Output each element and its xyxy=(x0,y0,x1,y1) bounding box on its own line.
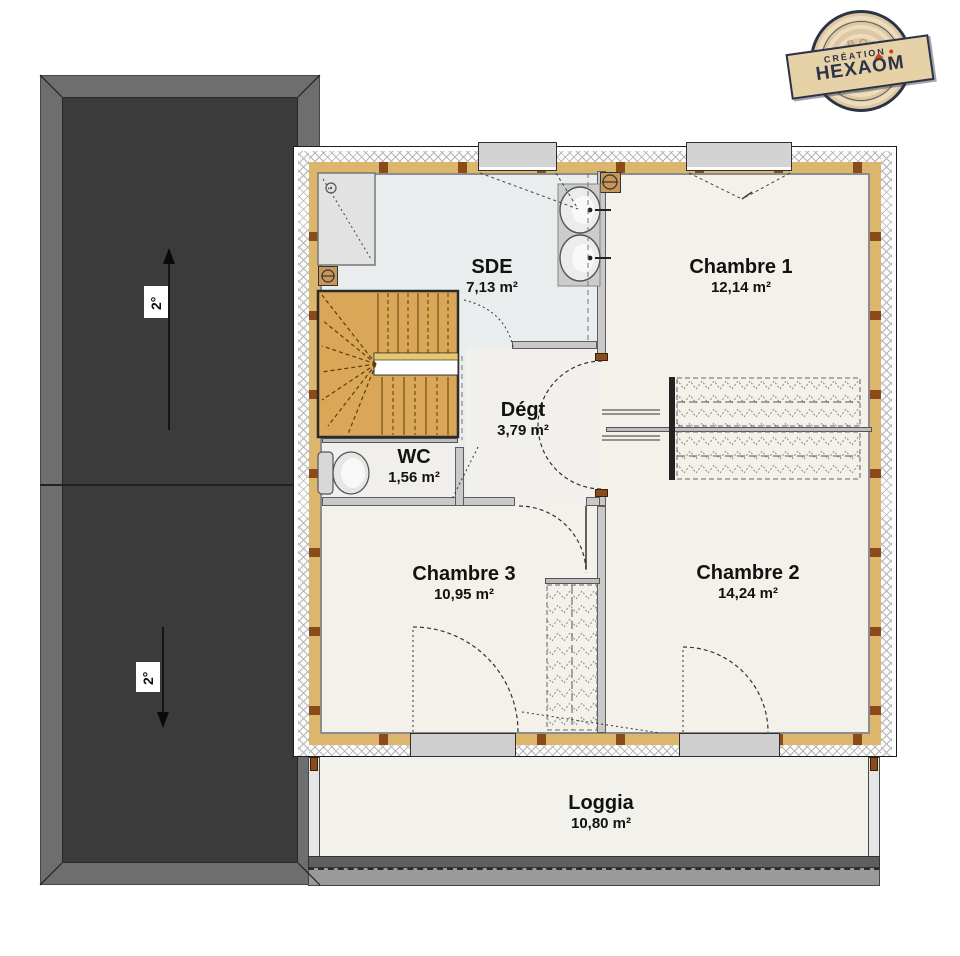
utility-box-chambre1 xyxy=(600,172,621,193)
exterior-wall-left xyxy=(298,151,309,756)
wall-stairs-wc xyxy=(322,438,458,443)
loggia-railing-band xyxy=(308,856,880,868)
roof-ridge-seam xyxy=(40,484,320,486)
loggia-door-chambre3 xyxy=(410,733,516,757)
room-label-chambre3: Chambre 3 10,95 m² xyxy=(412,563,515,604)
loggia-jamb-right xyxy=(870,757,878,771)
room-area: 1,56 m² xyxy=(388,468,440,487)
room-label-degt: Dégt 3,79 m² xyxy=(497,399,549,440)
room-label-chambre1: Chambre 1 12,14 m² xyxy=(689,256,792,297)
window-chambre1 xyxy=(686,142,792,171)
insulation-bottom xyxy=(309,734,881,745)
room-name: SDE xyxy=(466,256,518,278)
wall-sde-degt xyxy=(512,341,597,349)
roof-wing-inner xyxy=(62,97,298,863)
insulation-top xyxy=(309,162,881,173)
room-area: 14,24 m² xyxy=(696,584,799,603)
wall-hall-chambre3-stub xyxy=(586,497,600,506)
closet-top-wall xyxy=(545,578,600,584)
room-area: 7,13 m² xyxy=(466,278,518,297)
floor-plan-canvas: 2° 2° xyxy=(0,0,960,956)
room-area: 3,79 m² xyxy=(497,421,549,440)
insulation-right xyxy=(870,162,881,745)
wall-sde-chambre1 xyxy=(597,171,606,361)
wall-wc-degt xyxy=(455,447,464,506)
room-area: 10,80 m² xyxy=(568,814,634,833)
wall-chambre3-chambre2 xyxy=(597,506,606,733)
room-name: Loggia xyxy=(568,792,634,814)
hexaom-stamp-logo: BOIS CRÉATION HEXAOM xyxy=(795,8,921,122)
insulation-left xyxy=(309,162,320,745)
room-label-wc: WC 1,56 m² xyxy=(388,446,440,487)
closet-divider-wall xyxy=(669,377,675,480)
room-label-loggia: Loggia 10,80 m² xyxy=(568,792,634,833)
wall-hall-chambre3 xyxy=(322,497,515,506)
room-label-sde: SDE 7,13 m² xyxy=(466,256,518,297)
wall-chambre1-chambre2 xyxy=(606,427,872,432)
loggia-jamb-left xyxy=(310,757,318,771)
exterior-wall-right xyxy=(881,151,892,756)
loggia-railing-edge xyxy=(308,868,880,886)
room-name: Chambre 2 xyxy=(696,562,799,584)
exterior-wall-bottom xyxy=(298,745,892,756)
room-name: Dégt xyxy=(497,399,549,421)
window-sde xyxy=(478,142,557,171)
door-jamb xyxy=(595,353,608,361)
door-jamb xyxy=(595,489,608,497)
utility-box-sde xyxy=(318,266,338,286)
loggia-door-chambre2 xyxy=(679,733,780,757)
room-name: Chambre 1 xyxy=(689,256,792,278)
room-name: WC xyxy=(388,446,440,468)
room-label-chambre2: Chambre 2 14,24 m² xyxy=(696,562,799,603)
room-name: Chambre 3 xyxy=(412,563,515,585)
exterior-wall-top xyxy=(298,151,892,162)
room-area: 10,95 m² xyxy=(412,585,515,604)
room-area: 12,14 m² xyxy=(689,278,792,297)
stamp-banner: CRÉATION HEXAOM xyxy=(785,34,934,100)
